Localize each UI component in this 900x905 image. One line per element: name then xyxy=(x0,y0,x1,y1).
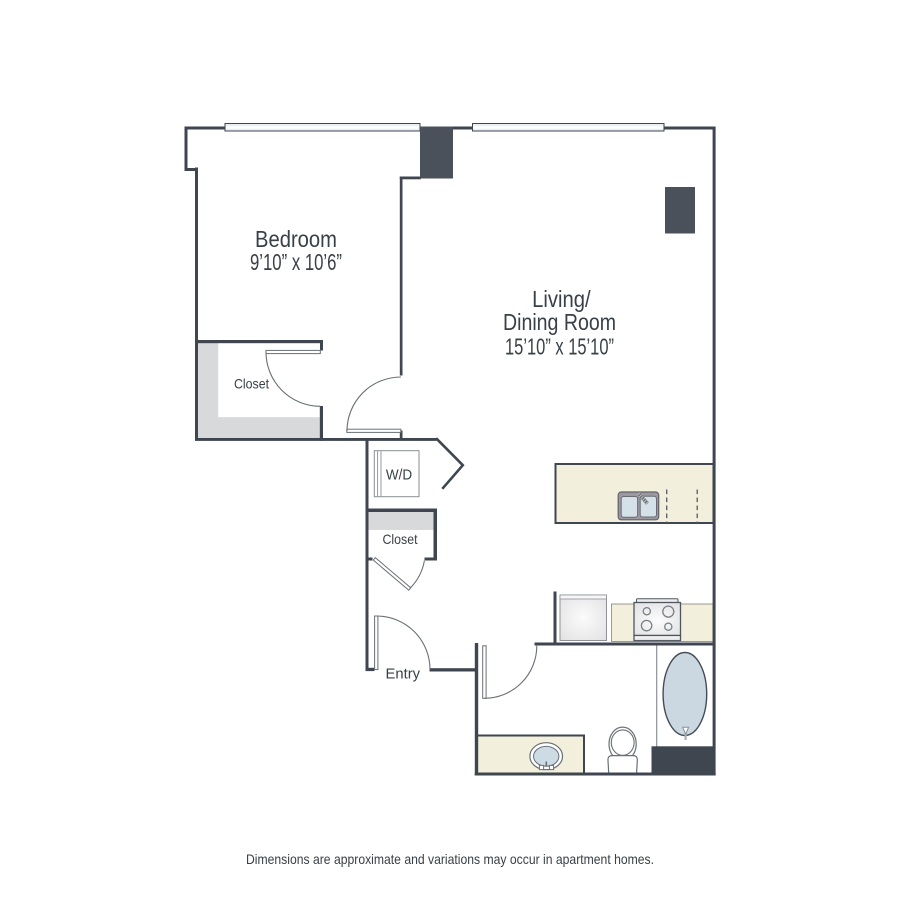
svg-text:Entry: Entry xyxy=(386,667,421,683)
svg-text:Dining Room: Dining Room xyxy=(503,309,616,335)
svg-text:Closet: Closet xyxy=(234,377,269,392)
svg-text:W/D: W/D xyxy=(386,468,412,484)
svg-text:15’10” x 15’10”: 15’10” x 15’10” xyxy=(505,334,614,360)
svg-text:Dimensions are approximate and: Dimensions are approximate and variation… xyxy=(246,851,654,867)
svg-text:9’10” x 10’6”: 9’10” x 10’6” xyxy=(250,249,342,275)
svg-text:Closet: Closet xyxy=(383,532,418,547)
